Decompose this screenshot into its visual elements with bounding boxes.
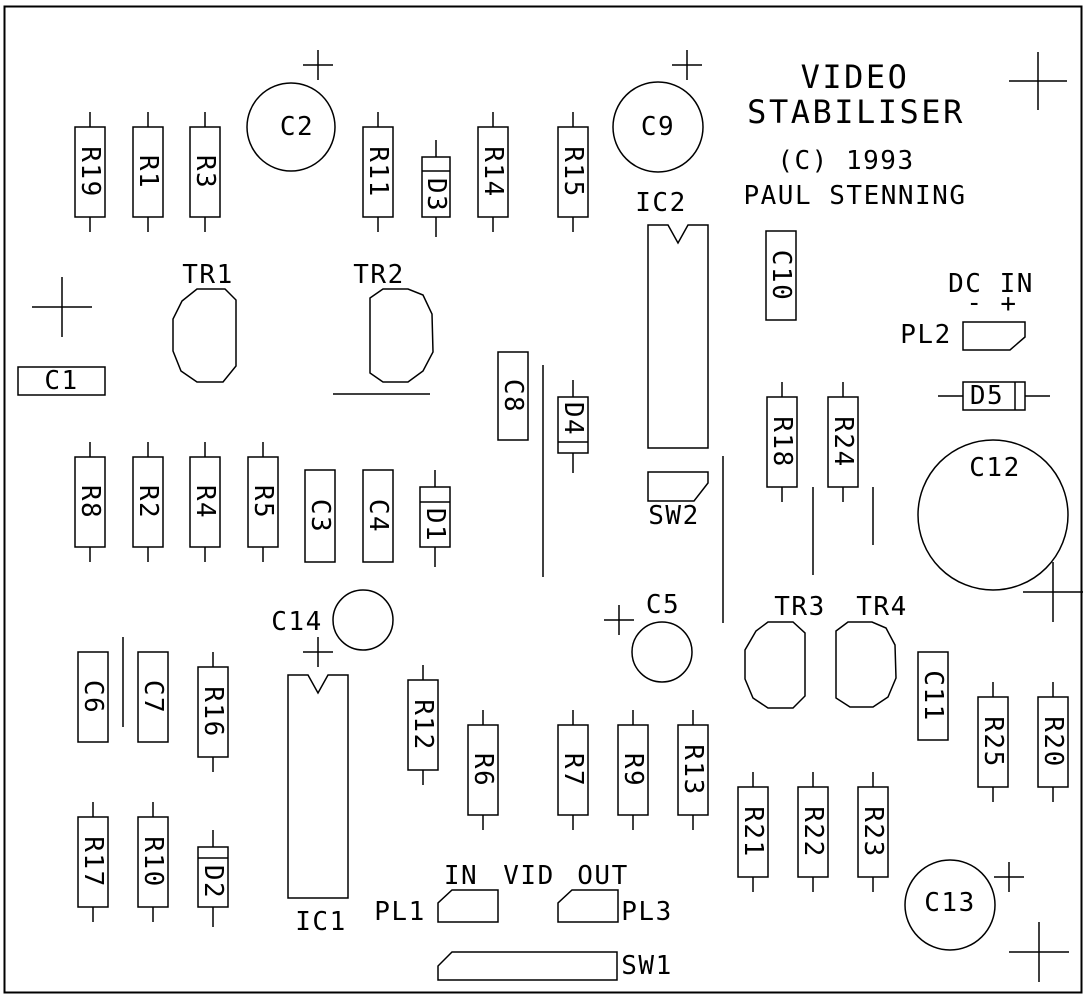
annotation-dc-in: DC IN <box>948 269 1034 299</box>
capacitor-label-C12: C12 <box>969 453 1020 483</box>
diode-D4: D4 <box>558 380 588 473</box>
resistor-label-R17: R17 <box>78 836 108 887</box>
resistor-R6: R6 <box>468 710 498 830</box>
connector-body-SW1 <box>438 952 617 980</box>
transistor-label-TR4: TR4 <box>856 592 907 622</box>
resistor-R23: R23 <box>858 772 888 892</box>
capacitor-body-C5 <box>632 622 692 682</box>
transistor-body-TR1 <box>173 289 236 382</box>
capacitor-label-C5: C5 <box>646 590 680 620</box>
resistor-label-R5: R5 <box>248 485 278 519</box>
resistor-R13: R13 <box>678 710 708 830</box>
capacitor-label-C4: C4 <box>363 499 393 533</box>
resistor-R7: R7 <box>558 710 588 830</box>
diode-D5: D5 <box>938 381 1050 411</box>
resistor-R1: R1 <box>133 112 163 232</box>
title-author: PAUL STENNING <box>744 181 967 211</box>
connector-body-PL1 <box>438 890 498 922</box>
resistor-R14: R14 <box>478 112 508 232</box>
transistor-label-TR3: TR3 <box>774 592 825 622</box>
resistor-R2: R2 <box>133 442 163 562</box>
capacitor-C2: C2 <box>247 83 335 171</box>
resistor-R16: R16 <box>198 652 228 772</box>
diode-label-D4: D4 <box>558 402 588 436</box>
transistor-TR1: TR1 <box>173 260 236 382</box>
connector-body-PL3 <box>558 890 618 922</box>
transistor-body-TR4 <box>836 622 896 707</box>
resistor-R20: R20 <box>1038 682 1068 802</box>
title-line1: VIDEO <box>801 58 910 96</box>
transistor-TR2: TR2 <box>353 260 433 382</box>
resistor-label-R13: R13 <box>678 744 708 795</box>
capacitor-C4: C4 <box>363 470 393 562</box>
annotation--: + <box>1000 289 1017 319</box>
resistor-R3: R3 <box>190 112 220 232</box>
connector-PL1: PL1 <box>374 890 498 927</box>
connector-label-SW2: SW2 <box>648 501 699 531</box>
resistor-label-R4: R4 <box>190 485 220 519</box>
transistor-label-TR2: TR2 <box>353 260 404 290</box>
resistor-R22: R22 <box>798 772 828 892</box>
resistor-label-R8: R8 <box>75 485 105 519</box>
capacitor-label-C3: C3 <box>305 499 335 533</box>
crosshair-mark-2 <box>672 50 702 80</box>
resistor-R15: R15 <box>558 112 588 232</box>
resistor-label-R24: R24 <box>828 416 858 467</box>
ic-label-IC2: IC2 <box>635 188 686 218</box>
capacitor-label-C1: C1 <box>44 366 78 396</box>
connector-label-SW1: SW1 <box>621 951 672 981</box>
capacitor-label-C11: C11 <box>918 670 948 721</box>
connector-label-PL2: PL2 <box>900 320 951 350</box>
annotation-in: IN <box>444 861 478 891</box>
connector-label-PL1: PL1 <box>374 897 425 927</box>
capacitor-C14: C14 <box>271 590 393 650</box>
crosshair-mark-3 <box>1009 52 1067 110</box>
resistor-label-R14: R14 <box>478 146 508 197</box>
capacitor-C3: C3 <box>305 470 335 562</box>
capacitor-C7: C7 <box>138 652 168 742</box>
resistor-label-R21: R21 <box>738 806 768 857</box>
transistor-TR4: TR4 <box>836 592 908 707</box>
diode-D2: D2 <box>198 830 228 927</box>
crosshair-mark-8 <box>994 862 1024 892</box>
resistor-label-R2: R2 <box>133 485 163 519</box>
capacitor-C6: C6 <box>78 652 108 742</box>
ic-body-IC1 <box>288 675 348 898</box>
resistor-label-R11: R11 <box>363 146 393 197</box>
transistor-body-TR3 <box>745 622 805 708</box>
capacitor-label-C9: C9 <box>641 112 675 142</box>
diode-label-D3: D3 <box>421 178 451 212</box>
resistor-label-R12: R12 <box>408 699 438 750</box>
capacitor-C10: C10 <box>766 231 796 320</box>
crosshair-mark-4 <box>32 277 92 337</box>
connector-SW2: SW2 <box>648 472 708 531</box>
resistor-R24: R24 <box>828 382 858 502</box>
resistor-label-R3: R3 <box>190 155 220 189</box>
resistor-label-R15: R15 <box>558 146 588 197</box>
title-copyright: (C) 1993 <box>777 146 914 176</box>
title-line2: STABILISER <box>747 93 965 131</box>
diode-label-D2: D2 <box>198 865 228 899</box>
capacitor-label-C14: C14 <box>271 607 322 637</box>
connector-label-PL3: PL3 <box>621 897 672 927</box>
resistor-R9: R9 <box>618 710 648 830</box>
diode-label-D5: D5 <box>970 381 1004 411</box>
resistor-label-R25: R25 <box>978 716 1008 767</box>
resistor-R17: R17 <box>78 802 108 922</box>
capacitor-body-C14 <box>333 590 393 650</box>
resistor-label-R16: R16 <box>198 686 228 737</box>
annotation--: - <box>966 288 983 318</box>
capacitor-C9: C9 <box>613 82 703 172</box>
crosshair-mark-6 <box>604 605 634 635</box>
transistor-TR3: TR3 <box>745 592 826 708</box>
diode-D1: D1 <box>420 470 450 567</box>
resistor-R12: R12 <box>408 665 438 785</box>
capacitor-C12: C12 <box>918 440 1068 590</box>
resistor-label-R19: R19 <box>75 146 105 197</box>
resistor-R18: R18 <box>767 382 797 502</box>
connector-body-SW2 <box>648 472 708 501</box>
capacitor-C1: C1 <box>18 366 105 396</box>
connector-SW1: SW1 <box>438 951 673 981</box>
resistor-label-R22: R22 <box>798 806 828 857</box>
resistor-label-R20: R20 <box>1038 716 1068 767</box>
resistor-label-R7: R7 <box>558 753 588 787</box>
capacitor-C11: C11 <box>918 652 948 740</box>
capacitor-label-C2: C2 <box>280 112 314 142</box>
ic-body-IC2 <box>648 225 708 448</box>
crosshair-mark-7 <box>1023 562 1083 622</box>
diode-label-D1: D1 <box>420 508 450 542</box>
resistor-R4: R4 <box>190 442 220 562</box>
diode-D3: D3 <box>421 140 451 237</box>
ic-IC2: IC2 <box>635 188 708 448</box>
annotation-out: OUT <box>577 861 628 891</box>
crosshair-mark-1 <box>303 50 333 80</box>
crosshair-mark-9 <box>1009 922 1069 982</box>
resistor-R25: R25 <box>978 682 1008 802</box>
capacitor-label-C6: C6 <box>78 680 108 714</box>
resistor-R5: R5 <box>248 442 278 562</box>
capacitor-label-C7: C7 <box>138 680 168 714</box>
connector-PL2: PL2 <box>900 320 1025 350</box>
connector-PL3: PL3 <box>558 890 673 927</box>
transistor-label-TR1: TR1 <box>182 260 233 290</box>
resistor-R8: R8 <box>75 442 105 562</box>
resistor-label-R10: R10 <box>138 836 168 887</box>
resistor-label-R9: R9 <box>618 753 648 787</box>
resistor-label-R6: R6 <box>468 753 498 787</box>
ic-label-IC1: IC1 <box>295 907 346 937</box>
capacitor-label-C8: C8 <box>498 379 528 413</box>
resistor-R19: R19 <box>75 112 105 232</box>
resistor-label-R23: R23 <box>858 806 888 857</box>
capacitor-label-C10: C10 <box>766 250 796 301</box>
resistor-label-R18: R18 <box>767 416 797 467</box>
annotation-vid: VID <box>503 861 554 891</box>
capacitor-C13: C13 <box>905 860 995 950</box>
pcb-layout-diagram: VIDEO STABILISER (C) 1993 PAUL STENNING … <box>0 0 1090 1002</box>
ic-IC1: IC1 <box>288 675 348 937</box>
capacitor-C8: C8 <box>498 352 528 440</box>
capacitor-label-C13: C13 <box>924 888 975 918</box>
resistor-R21: R21 <box>738 772 768 892</box>
resistor-R11: R11 <box>363 112 393 232</box>
resistor-label-R1: R1 <box>133 155 163 189</box>
connector-body-PL2 <box>963 322 1025 350</box>
capacitor-C5: C5 <box>632 590 692 682</box>
resistor-R10: R10 <box>138 802 168 922</box>
crosshair-mark-5 <box>303 637 333 667</box>
transistor-body-TR2 <box>370 289 433 382</box>
